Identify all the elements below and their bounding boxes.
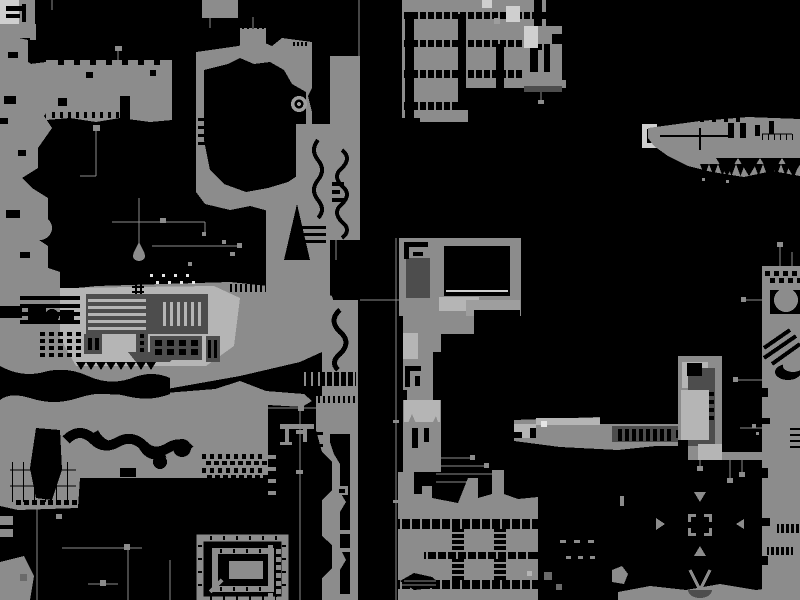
game-map-canvas <box>0 0 800 600</box>
screenshot-root <box>0 0 800 600</box>
